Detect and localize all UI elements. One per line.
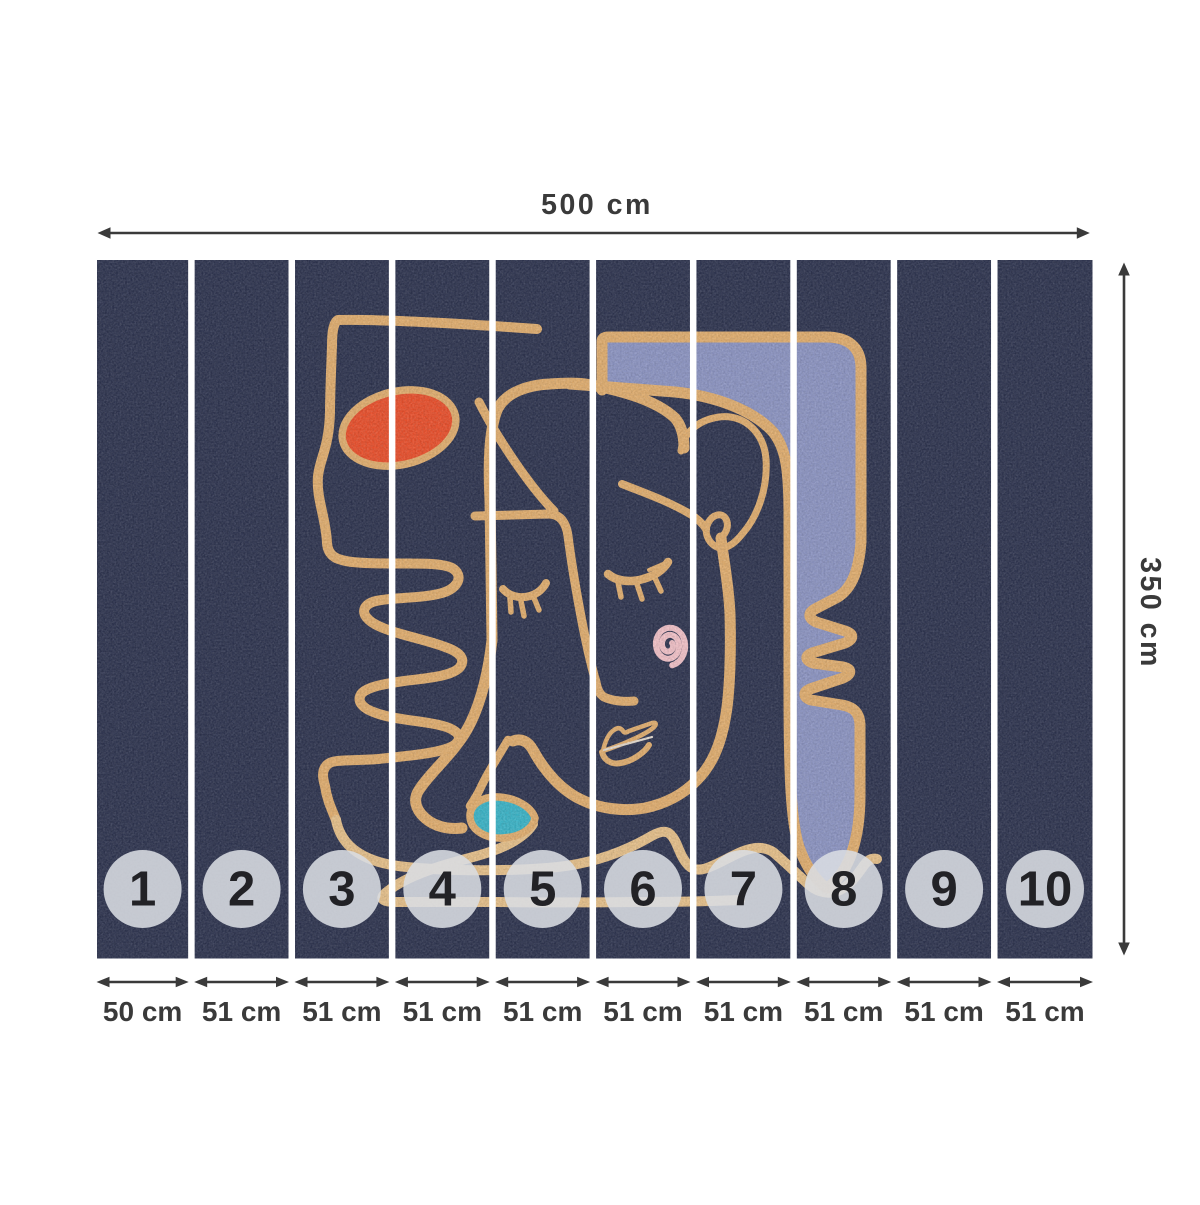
- svg-text:3: 3: [328, 863, 355, 917]
- svg-text:4: 4: [429, 863, 456, 917]
- svg-text:10: 10: [1018, 863, 1073, 917]
- svg-text:350 cm: 350 cm: [1134, 557, 1166, 669]
- svg-text:51 cm: 51 cm: [704, 996, 783, 1027]
- svg-text:7: 7: [730, 863, 757, 917]
- svg-text:51 cm: 51 cm: [403, 996, 482, 1027]
- svg-text:51 cm: 51 cm: [302, 996, 381, 1027]
- svg-text:51 cm: 51 cm: [603, 996, 682, 1027]
- svg-text:9: 9: [930, 863, 957, 917]
- svg-text:51 cm: 51 cm: [804, 996, 883, 1027]
- svg-text:51 cm: 51 cm: [503, 996, 582, 1027]
- svg-text:500 cm: 500 cm: [541, 189, 653, 221]
- svg-text:51 cm: 51 cm: [202, 996, 281, 1027]
- svg-text:2: 2: [228, 863, 255, 917]
- svg-text:8: 8: [830, 863, 857, 917]
- svg-text:51 cm: 51 cm: [904, 996, 983, 1027]
- svg-text:6: 6: [629, 863, 656, 917]
- svg-text:51 cm: 51 cm: [1005, 996, 1084, 1027]
- svg-text:1: 1: [129, 863, 156, 917]
- svg-text:50 cm: 50 cm: [103, 996, 182, 1027]
- svg-text:5: 5: [529, 863, 556, 917]
